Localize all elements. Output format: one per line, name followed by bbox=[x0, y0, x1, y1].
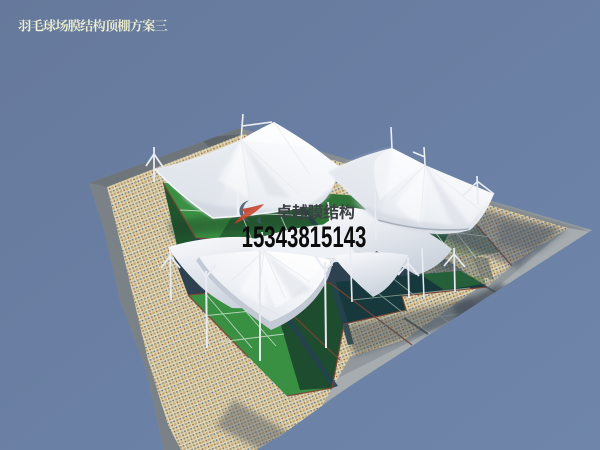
svg-text:15343815143: 15343815143 bbox=[242, 221, 367, 254]
